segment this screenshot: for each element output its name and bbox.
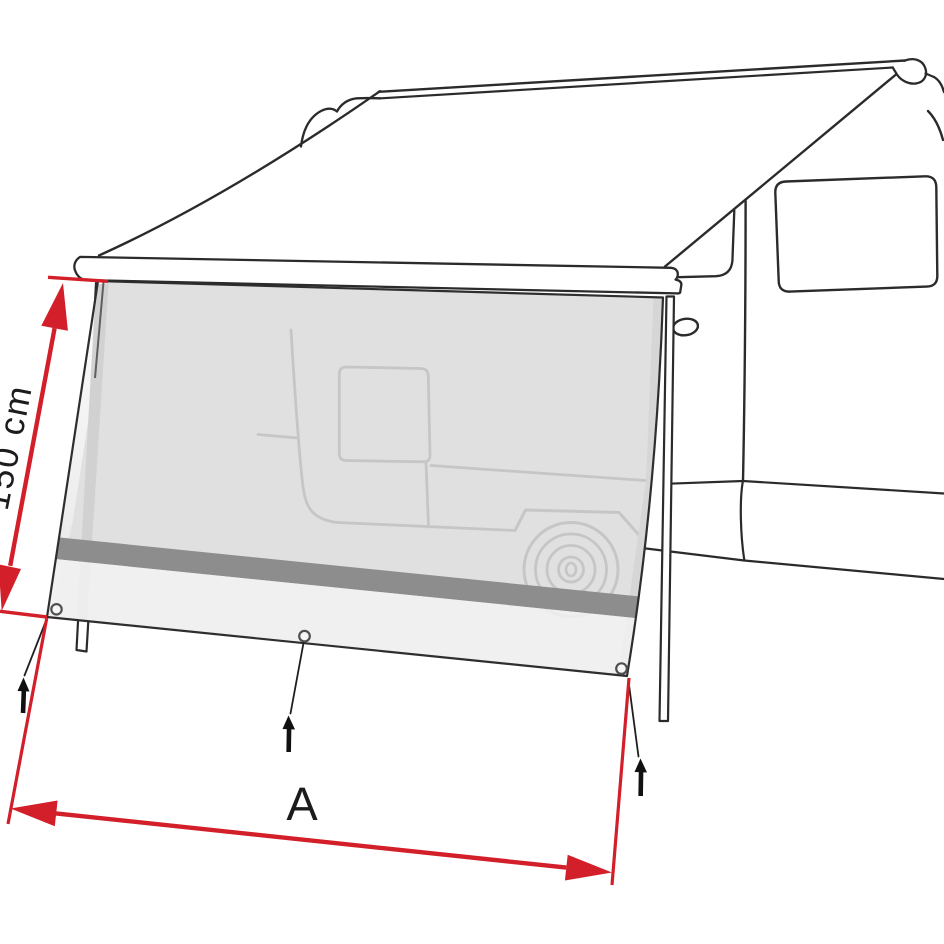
svg-text:A: A [286, 777, 318, 830]
